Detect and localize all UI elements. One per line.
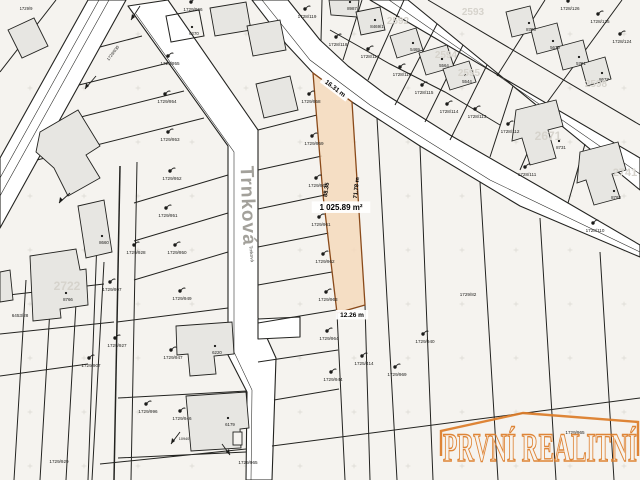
label-text: 1729/954: [157, 99, 177, 104]
block-number-label: 2741: [613, 167, 637, 179]
label-text: 2593: [462, 7, 485, 18]
label-text: 5679: [550, 45, 560, 50]
building-number-label: 5564: [439, 63, 449, 68]
label-text: 5469: [410, 47, 420, 52]
block-number-label: 2671: [535, 129, 562, 143]
label-text: 1728/111: [518, 172, 537, 177]
cadastral-map: 1729/91729/9661729/9551729/9541729/95317…: [0, 0, 640, 480]
building: [256, 76, 298, 118]
building-dot-icon: [578, 56, 580, 58]
label-text: 2592: [387, 16, 410, 27]
label-text: 1728/125: [590, 19, 610, 24]
building-number-label: 8987: [347, 6, 357, 11]
label-text: 1729/907: [81, 363, 101, 368]
parcel-number-label: 1728/124: [612, 39, 632, 44]
building-dot-icon: [214, 345, 216, 347]
parcel-number-label: 1729/969: [387, 372, 407, 377]
parcel-number-label: 1729/928: [126, 250, 146, 255]
label-text: 8706: [526, 27, 536, 32]
parcel-number-label: 1729/947: [163, 355, 183, 360]
label-text: 1729/966: [183, 7, 203, 12]
parcel-number-label: 1729/940: [415, 339, 435, 344]
building: [210, 2, 251, 36]
label-text: 8469/1: [370, 24, 384, 29]
label-text: 1728/110: [586, 228, 605, 233]
label-text: 12.26 m: [340, 312, 364, 319]
label-text: 1729/950: [167, 250, 187, 255]
parcel-number-label: 1728/113: [468, 114, 487, 119]
building-dot-icon: [613, 190, 615, 192]
label-text: 1729/940: [415, 339, 435, 344]
label-text: 1729/946: [172, 416, 192, 421]
label-text: 2594: [435, 50, 458, 61]
dimension-label: 1 025.89 m²: [312, 201, 371, 213]
building-number-label: 5544: [462, 79, 472, 84]
label-text: 1729/955: [160, 61, 180, 66]
label-text: 8731: [556, 145, 566, 150]
label-text: 1729/947: [163, 355, 183, 360]
block-number-label: 2594: [435, 50, 458, 61]
label-text: 2741: [613, 167, 637, 179]
parcel-number-label: 1728/126: [560, 6, 580, 11]
parcel-number-label: 1729/959: [304, 141, 324, 146]
building-dot-icon: [349, 1, 351, 3]
street-name-label: Trnková: [236, 166, 260, 247]
label-text: 1729/82: [460, 292, 477, 297]
parcel-number-label: 1728/115: [415, 90, 434, 95]
parcel-number-label: 1729/82: [460, 292, 477, 297]
parcel-number-label: 1729/962: [315, 259, 335, 264]
label-text: 8766: [63, 297, 73, 302]
label-text: 1729/952: [162, 176, 182, 181]
parcel-number-label: 1729/966: [183, 7, 203, 12]
label-text: 1729/961: [311, 222, 331, 227]
label-text: 6453/28: [12, 313, 29, 318]
parcel-number-label: 1728/117: [361, 54, 380, 59]
parcel-number-label: 1728/118: [329, 42, 348, 47]
parcel-number-label: 1729/965: [238, 460, 258, 465]
watermark-text: PRVNÍ REALITNÍ: [443, 425, 637, 470]
building-number-label: 8766: [63, 297, 73, 302]
parcel-number-label: 1729/946: [172, 416, 192, 421]
parcel-number-label: 1729/927: [107, 343, 127, 348]
label-text: Trnková: [236, 166, 260, 247]
label-text: 1729/927: [107, 343, 127, 348]
label-text: 5564: [439, 63, 449, 68]
parcel-number-label: 1729/963: [318, 297, 338, 302]
cadastral-map-screenshot: 1729/91729/9661729/9551729/9541729/95317…: [0, 0, 640, 480]
parcel-number-label: 1729/929: [49, 459, 69, 464]
parcel-number-label: 1729/996: [138, 409, 158, 414]
building-number-label: 8660: [99, 240, 109, 245]
building-number-label: 8706: [526, 27, 536, 32]
parcel-number-label: 1729/953: [160, 137, 180, 142]
label-text: 1729/996: [138, 409, 158, 414]
parcel-number-label: 1725/414: [354, 361, 374, 366]
label-text: 5544: [462, 79, 472, 84]
label-text: 1728/126: [560, 6, 580, 11]
parcel-number-label: 1729/955: [160, 61, 180, 66]
parcel-number-label: 1729/964: [319, 336, 339, 341]
label-text: 1729/953: [160, 137, 180, 142]
label-text: 6220: [212, 350, 222, 355]
parcel-number-label: 1728/114: [440, 109, 459, 114]
parcel-number-label: 1728/125: [590, 19, 610, 24]
label-text: 1729/9: [20, 6, 33, 11]
label-text: 2722: [54, 279, 81, 293]
label-text: 1 025.89 m²: [319, 203, 362, 212]
building-dot-icon: [601, 72, 603, 74]
parcel-number-label: 6453/28: [12, 313, 29, 318]
block-number-label: 2592: [387, 16, 410, 27]
label-text: 1729/997: [102, 287, 122, 292]
label-text: 8987: [347, 6, 357, 11]
building-number-label: 6270: [189, 31, 199, 36]
parcel-number-label: 1729/958: [301, 99, 321, 104]
building-number-label: 8793: [611, 195, 621, 200]
block-number-label: 2593: [462, 7, 485, 18]
building-number-label: 5791: [576, 61, 586, 66]
label-text: 2671: [535, 129, 562, 143]
parcel-number-label: 1729/954: [157, 99, 177, 104]
building-courtyard: [233, 432, 242, 445]
building-dot-icon: [374, 19, 376, 21]
parcel-number-label: 1729/961: [311, 222, 331, 227]
label-text: 10940: [179, 437, 190, 441]
label-text: 5791: [576, 61, 586, 66]
parcel-number-label: 1728/119: [298, 14, 317, 19]
label-text: 1725/414: [354, 361, 374, 366]
label-text: 1728/118: [329, 42, 348, 47]
parcel-number-label: 1729/952: [162, 176, 182, 181]
parcel-number-label: 1729/950: [167, 250, 187, 255]
label-text: 2598: [585, 79, 608, 90]
building-dot-icon: [528, 22, 530, 24]
parcel-number-label: 1728/110: [586, 228, 605, 233]
building-number-label: 5679: [550, 45, 560, 50]
parcel-number-label: 1728/111: [518, 172, 537, 177]
label-text: 1728/113: [468, 114, 487, 119]
building-number-label: 6220: [212, 350, 222, 355]
building-number-label: 8731: [556, 145, 566, 150]
label-text: 6179: [225, 422, 235, 427]
label-text: 2595: [458, 68, 481, 79]
building-dot-icon: [552, 40, 554, 42]
parcel-number-label: 10940: [179, 437, 190, 441]
label-text: 1728/117: [361, 54, 380, 59]
building-number-label: 8469/1: [370, 24, 384, 29]
parcel-number-label: 1729/997: [102, 287, 122, 292]
label-text: 1729/951: [158, 213, 178, 218]
label-text: 6270: [189, 31, 199, 36]
label-text: 1728/124: [612, 39, 632, 44]
label-text: 1729/962: [315, 259, 335, 264]
label-text: 1729/959: [304, 141, 324, 146]
label-text: 1728/116: [393, 72, 412, 77]
dimension-label: 12.26 m: [336, 310, 368, 319]
label-text: 1729/969: [387, 372, 407, 377]
parcel-number-label: 1728/112: [501, 129, 520, 134]
label-text: 1729/958: [301, 99, 321, 104]
label-text: 1728/112: [501, 129, 520, 134]
parcel-number-label: 1729/949: [172, 296, 192, 301]
label-text: 8793: [611, 195, 621, 200]
parcel-number-label: 1728/116: [393, 72, 412, 77]
block-number-label: 2722: [54, 279, 81, 293]
parcel-number-label: 1729/944: [323, 377, 343, 382]
building-number-label: 6179: [225, 422, 235, 427]
label-text: 8660: [99, 240, 109, 245]
label-text: 1729/949: [172, 296, 192, 301]
building-number-label: 5469: [410, 47, 420, 52]
parcel-number-label: 1729/9: [20, 6, 33, 11]
label-text: 1729/963: [318, 297, 338, 302]
road-stub: [258, 317, 300, 339]
building-dot-icon: [191, 26, 193, 28]
label-text: 1728/115: [415, 90, 434, 95]
label-text: 1728/114: [440, 109, 459, 114]
building: [247, 20, 286, 56]
building-dot-icon: [227, 417, 229, 419]
building-8469-1: [356, 7, 385, 35]
building-dot-icon: [412, 42, 414, 44]
label-text: 1728/119: [298, 14, 317, 19]
label-text: 1729/965: [238, 460, 258, 465]
label-text: 1729/928: [126, 250, 146, 255]
parcel-number-label: 1729/907: [81, 363, 101, 368]
block-number-label: 2595: [458, 68, 481, 79]
parcel-number-label: 1729/951: [158, 213, 178, 218]
label-text: 1729/964: [319, 336, 339, 341]
label-text: 1729/929: [49, 459, 69, 464]
label-text: 1729/944: [323, 377, 343, 382]
block-number-label: 2598: [585, 79, 608, 90]
building-dot-icon: [101, 235, 103, 237]
